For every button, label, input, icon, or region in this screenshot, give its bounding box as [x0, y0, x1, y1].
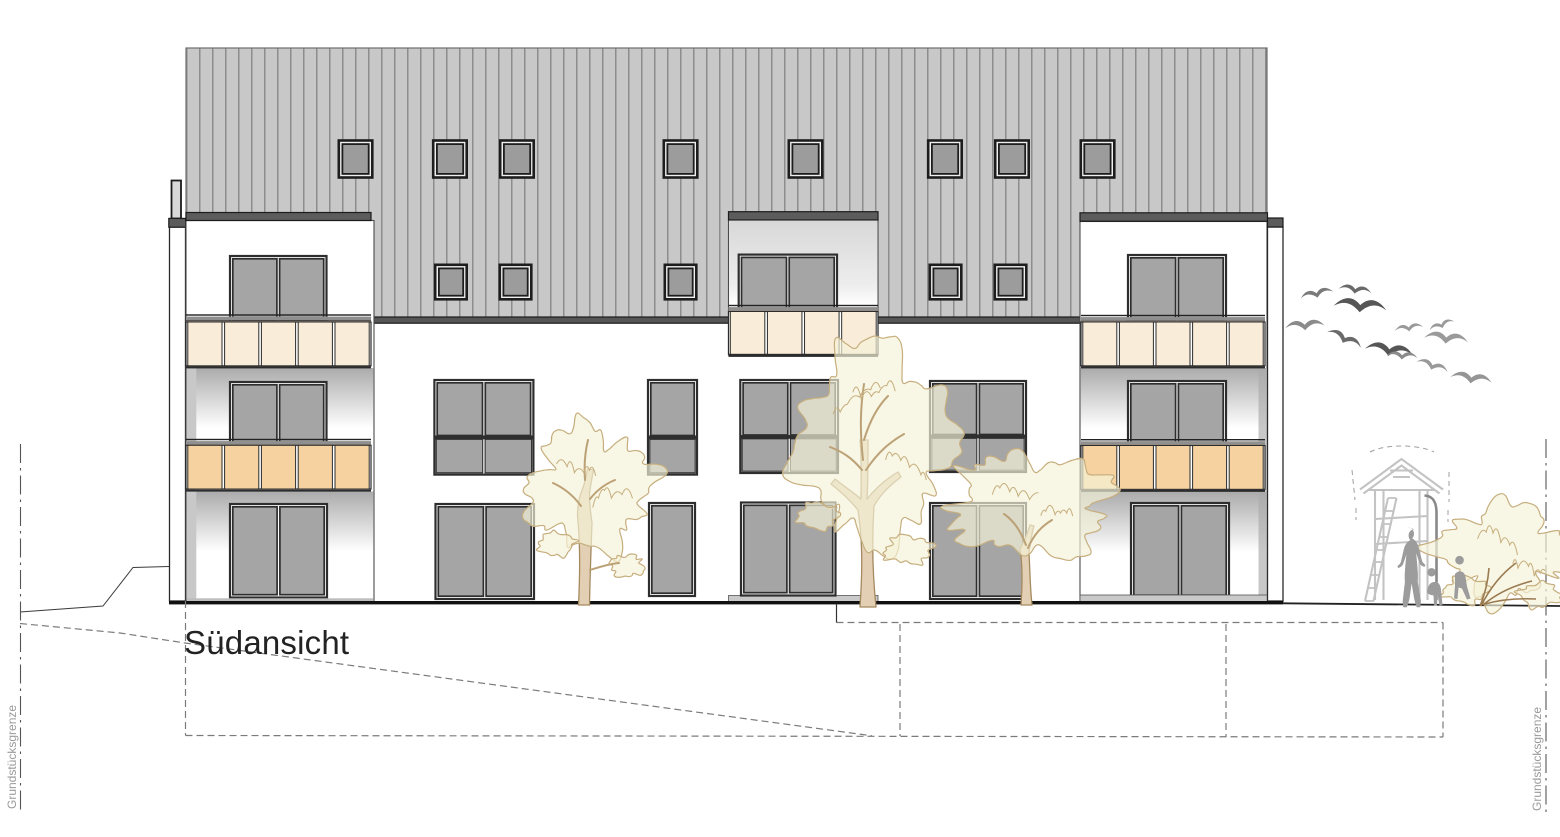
svg-text:Grundstücksgrenze: Grundstücksgrenze	[5, 705, 19, 809]
svg-text:Südansicht: Südansicht	[184, 624, 349, 661]
svg-text:Grundstücksgrenze: Grundstücksgrenze	[1530, 707, 1544, 811]
